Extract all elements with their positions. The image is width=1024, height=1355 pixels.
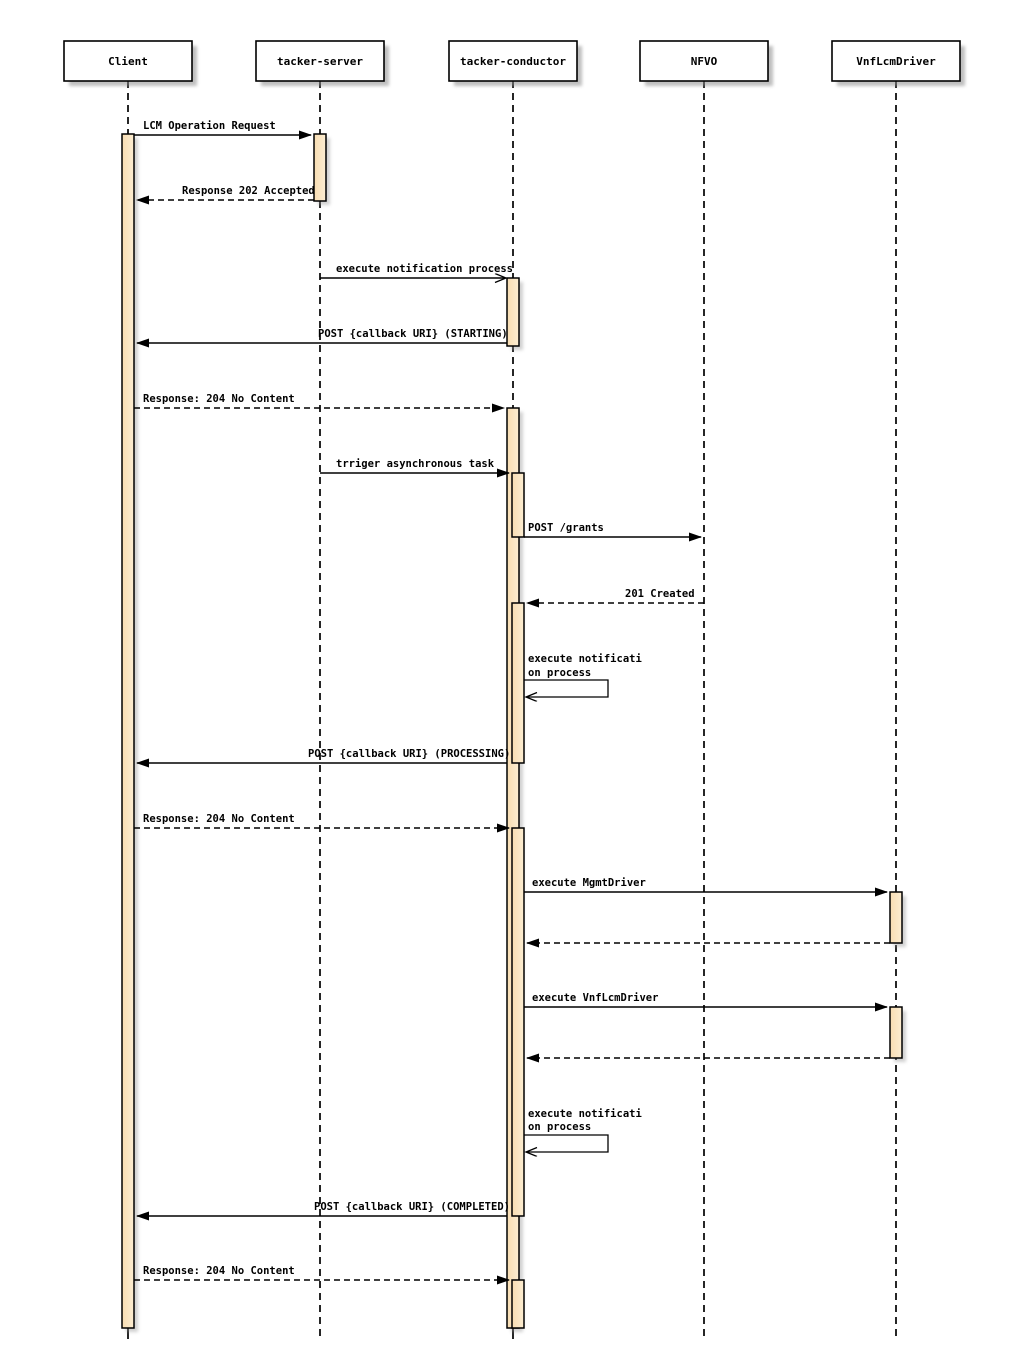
participant-name: VnfLcmDriver: [856, 55, 936, 68]
activation-bar-conductor-1: [507, 278, 519, 346]
message-label: Response: 204 No Content: [143, 813, 295, 825]
participant-name: tacker-conductor: [460, 55, 566, 68]
activation-bar-conductor-nested-4: [512, 1280, 524, 1328]
activation-bar-client: [122, 134, 134, 1328]
self-message-label-line1: execute notificati: [528, 1108, 642, 1120]
message-label: POST {callback URI} (PROCESSING): [308, 748, 510, 760]
message-label: execute MgmtDriver: [532, 877, 646, 889]
participant-tacker-conductor: tacker-conductor: [449, 41, 582, 86]
message-label: LCM Operation Request: [143, 120, 276, 132]
activation-bar-vnflcmdriver-1: [890, 892, 902, 943]
message-label: POST /grants: [528, 522, 604, 534]
activation-bar-conductor-nested-1: [512, 473, 524, 537]
message-label: trriger asynchronous task: [336, 458, 495, 470]
participant-name: NFVO: [691, 55, 718, 68]
message-label: POST {callback URI} (COMPLETED): [314, 1201, 510, 1213]
participant-name: Client: [108, 55, 148, 68]
activation-bar-tacker-server: [314, 134, 326, 201]
message-label: Response: 204 No Content: [143, 393, 295, 405]
participant-client: Client: [64, 41, 197, 86]
message-label: 201 Created: [625, 588, 695, 600]
participant-nfvo: NFVO: [640, 41, 773, 86]
message-label: POST {callback URI} (STARTING): [318, 328, 508, 340]
participant-tacker-server: tacker-server: [256, 41, 389, 86]
message-label: Response 202 Accepted: [182, 185, 315, 197]
self-message-notification-1-line: [524, 680, 608, 697]
message-label: execute notification process: [336, 263, 513, 275]
message-label: execute VnfLcmDriver: [532, 992, 658, 1004]
participant-vnflcmdriver: VnfLcmDriver: [832, 41, 965, 86]
activation-bar-conductor-nested-3: [512, 828, 524, 1216]
message-label: Response: 204 No Content: [143, 1265, 295, 1277]
self-message-label-line1: execute notificati: [528, 653, 642, 665]
self-message-label-line2: on process: [528, 1121, 591, 1133]
sequence-diagram: Client tacker-server tacker-conductor NF…: [0, 0, 1024, 1355]
self-message-notification-2-line: [524, 1135, 608, 1152]
activation-bar-vnflcmdriver-2: [890, 1007, 902, 1058]
self-message-label-line2: on process: [528, 667, 591, 679]
participant-name: tacker-server: [277, 55, 363, 68]
sequence-diagram-canvas: Client tacker-server tacker-conductor NF…: [0, 0, 1024, 1355]
activation-bar-conductor-nested-2: [512, 603, 524, 763]
